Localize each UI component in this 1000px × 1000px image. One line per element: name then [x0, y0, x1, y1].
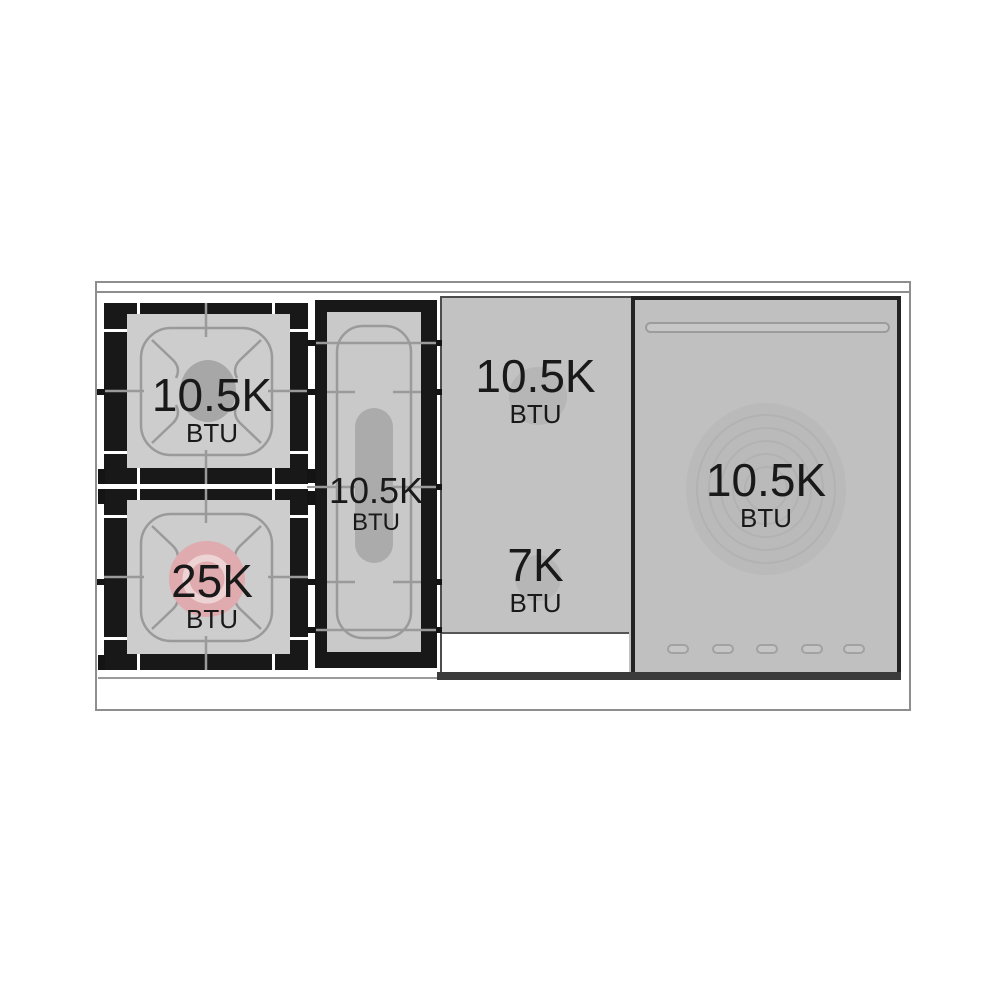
bottom-trim-line: [98, 677, 437, 679]
burner-label-griddle-rear: 10.5K BTU: [440, 354, 631, 427]
burner-unit-label: BTU: [315, 511, 437, 535]
product-diagram: 10.5K BTU 25K BTU 10.5K BTU 10.5K BTU 7K…: [0, 0, 1000, 1000]
grate-tick: [436, 627, 442, 633]
grate-foot: [98, 469, 105, 484]
grate-tick: [97, 579, 105, 585]
griddle-front-trim: [442, 632, 629, 672]
vent-slot-icon: [843, 644, 865, 654]
burner-power-label: 10.5K: [440, 354, 631, 398]
burner-unit-label: BTU: [440, 401, 631, 427]
burner-unit-label: BTU: [631, 505, 901, 531]
vent-slot-icon: [667, 644, 689, 654]
burner-label-left-front: 25K BTU: [110, 559, 314, 632]
grate-tick: [436, 340, 442, 346]
vent-slot-icon: [801, 644, 823, 654]
burner-label-simmer-plate: 10.5K BTU: [631, 458, 901, 531]
burner-label-left-rear: 10.5K BTU: [110, 373, 314, 446]
burner-power-label: 10.5K: [631, 458, 901, 502]
grate-tick: [307, 340, 316, 346]
grate-tick: [97, 389, 105, 395]
cooktop-top-rail: [97, 291, 909, 293]
burner-unit-label: BTU: [110, 606, 314, 632]
burner-power-label: 25K: [110, 559, 314, 603]
burner-power-label: 7K: [440, 543, 631, 587]
burner-label-center-oval: 10.5K BTU: [315, 474, 437, 535]
vent-slot-icon: [756, 644, 778, 654]
burner-label-griddle-front: 7K BTU: [440, 543, 631, 616]
burner-unit-label: BTU: [440, 590, 631, 616]
vent-slot-icon: [712, 644, 734, 654]
burner-power-label: 10.5K: [315, 474, 437, 508]
grate-foot: [98, 489, 105, 504]
burner-unit-label: BTU: [110, 420, 314, 446]
bottom-trim-band: [437, 672, 901, 680]
grate-foot: [98, 655, 105, 670]
burner-power-label: 10.5K: [110, 373, 314, 417]
